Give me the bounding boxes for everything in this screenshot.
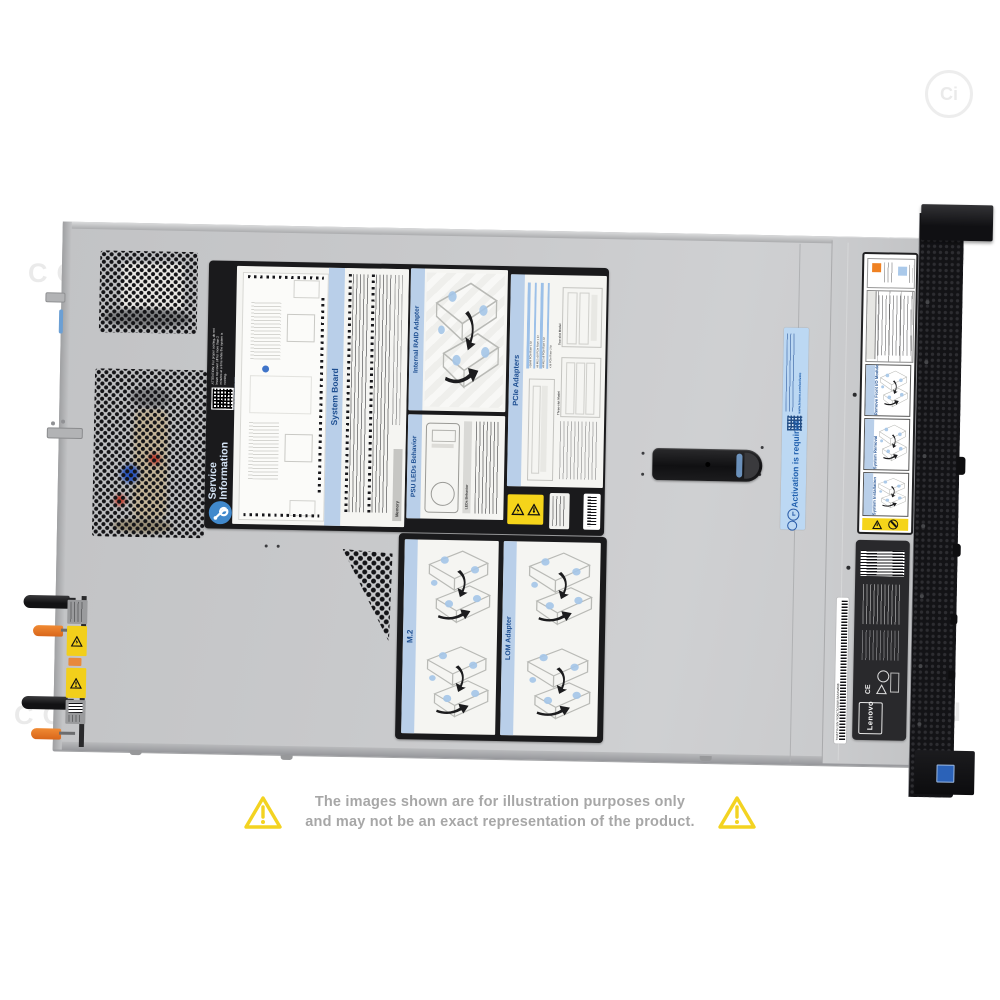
memory-section-bar: Memory (392, 449, 402, 521)
chassis-foot (130, 750, 142, 755)
lom-panel: LOM Adapter (500, 541, 601, 737)
lom-illustration (516, 641, 596, 732)
psu-leds-title-bar: PSU LEDs Behavior (406, 414, 422, 518)
bezel-screw (917, 722, 921, 726)
screw-hole (277, 545, 280, 548)
pcie-title-bar: PCIe Adapters (507, 274, 525, 486)
pcie-diagram (562, 287, 603, 348)
rail-warning-strip (862, 518, 908, 531)
system-board-legend: Memory (342, 268, 409, 527)
system-board-panel: System Board Memory (232, 266, 409, 527)
rear-tab (45, 292, 65, 302)
pcie-title: PCIe Adapters (511, 355, 521, 406)
clock-icon (787, 509, 799, 521)
rail-section: Remove Front I/O Module (864, 364, 911, 417)
activation-url: www.lenovo.com/activate (797, 373, 802, 414)
rack-ear-top (921, 204, 994, 241)
screw-hole (761, 446, 764, 449)
pcie-diagram (527, 379, 555, 481)
lom-title: LOM Adapter (505, 616, 513, 660)
pcie-diagram (560, 357, 601, 418)
bezel-screw (920, 594, 924, 598)
prohibited-icon (888, 519, 898, 529)
psu-leds-panel: PSU LEDs Behavior LEDs Behavior (406, 414, 505, 520)
internal-raid-panel: Internal RAID Adapter (408, 268, 508, 412)
raid-illustration (424, 273, 505, 408)
rear-vent-grille (92, 368, 207, 538)
warning-triangle-icon (243, 795, 283, 831)
psu1-handle (23, 595, 69, 609)
lom-title-bar: LOM Adapter (500, 541, 517, 735)
bezel-latch-tab (948, 671, 955, 680)
rear-latch-knob (61, 420, 65, 424)
rear-vent-grille (99, 250, 199, 334)
serial-barcode (839, 601, 848, 741)
m2-illustration (418, 543, 496, 636)
barcode-label (583, 494, 601, 530)
psu2-release-tab (31, 728, 61, 740)
disclaimer-line-2: and may not be an exact representation o… (305, 813, 694, 833)
rear-blue-clip (59, 310, 63, 334)
pcie-adapters-panel: PCIe Adapters x16/x8 PCIe Riser 1 kitx8 … (507, 274, 607, 488)
regulatory-text-block (862, 630, 901, 661)
warning-label-yellow (507, 494, 544, 525)
rail-sections: Remove Front I/O ModuleSystem RemovalSys… (862, 364, 911, 517)
m2-illustration (416, 639, 494, 730)
psu1-release-tab (33, 625, 63, 637)
certification-marks: CE (863, 666, 898, 699)
lenovo-logo-box: Lenovo (858, 702, 883, 734)
bezel-latch-tab (953, 544, 961, 557)
rail-section: System Installation (862, 472, 909, 517)
regulatory-text-block (862, 584, 901, 625)
orange-led-swatch (872, 263, 881, 272)
system-board-diagram (238, 272, 329, 522)
raid-title-bar: Internal RAID Adapter (408, 268, 425, 410)
raid-title: Internal RAID Adapter (413, 306, 421, 373)
lenovo-logo: Lenovo (865, 701, 875, 730)
m2-lom-label: M.2 LOM Adapter (395, 533, 607, 743)
product-photo: COMPAN PAN COMPAN COMPAN COMPAN PAN Ci C… (0, 0, 1000, 1000)
rail-section: System Removal (863, 418, 910, 471)
service-information-label: ATTENTION: For proper cooling, do not le… (204, 260, 609, 536)
rear-orange-label (68, 658, 81, 666)
bezel-screw (918, 664, 922, 668)
psu-drawing (424, 423, 460, 514)
screw-hole (641, 473, 644, 476)
leds-behavior-header: LEDs Behavior (462, 421, 472, 513)
rear-latch (47, 427, 83, 439)
psu-led-rows (474, 422, 500, 514)
pcie-riser-kit: x16 PCIe Riser 2 kit (546, 283, 554, 369)
psu2-handle (22, 696, 68, 710)
psu2-tab-wire (59, 732, 75, 735)
latch-end-cap (744, 453, 759, 479)
screw-hole (265, 544, 268, 547)
regulatory-barcode (860, 550, 904, 577)
chassis-foot (281, 755, 293, 760)
lom-illustration (518, 545, 598, 638)
screw-hole (846, 566, 850, 570)
bezel-latch-tab (956, 457, 965, 475)
disclaimer-text: The images shown are for illustration pu… (305, 793, 694, 832)
server-top-view: ATTENTION: For proper cooling, do not le… (0, 0, 1000, 1000)
led-legend-box (867, 258, 916, 289)
bezel-latch-tab (950, 614, 957, 625)
activation-gear-icon (787, 521, 797, 531)
disclaimer-line-1: The images shown are for illustration pu… (305, 793, 694, 813)
leds-behavior-header-text: LEDs Behavior (464, 484, 468, 509)
rear-warning-label (66, 668, 87, 698)
service-information-wordmark: Service Information (208, 443, 233, 499)
m2-title: M.2 (405, 630, 414, 644)
blue-led-swatch (898, 267, 907, 276)
rear-gray-label (67, 600, 87, 624)
service-qr-code (211, 387, 233, 409)
screw-hole (853, 393, 857, 397)
bezel-screw (921, 524, 925, 528)
activation-small-print (785, 333, 796, 411)
m2-panel: M.2 (401, 539, 499, 735)
activation-label: www.lenovo.com/activate Activation is re… (780, 327, 809, 529)
chassis-foot (700, 756, 712, 761)
psu-leds-title: PSU LEDs Behavior (410, 436, 418, 498)
rail-instruction-label: Remove Front I/O ModuleSystem RemovalSys… (857, 252, 918, 535)
bezel-screw (925, 300, 929, 304)
pcie-riser-kit-list: x16/x8 PCIe Riser 1 kitx8 ML2 x16 PCIe R… (526, 282, 554, 368)
pcie-notes (559, 421, 598, 480)
rear-latch-knob (51, 421, 55, 425)
attention-note: ATTENTION: For proper cooling, do not le… (211, 324, 233, 384)
hot-swap-note-label (549, 493, 570, 529)
rear-gray-label (65, 700, 85, 724)
brand-line-2: Information (219, 444, 231, 500)
xeon-badge (936, 764, 954, 782)
activation-title: Activation is required (790, 421, 802, 508)
m2-title-bar: M.2 (401, 539, 418, 733)
bezel-screw (924, 360, 928, 364)
latch-screw (705, 462, 710, 467)
system-board-title: System Board (329, 368, 340, 425)
latch-blue-accent (736, 454, 742, 478)
warning-triangle-icon (717, 795, 757, 831)
disclaimer: The images shown are for illustration pu… (0, 788, 1000, 838)
cover-release-latch (652, 448, 763, 482)
memory-header: Memory (394, 501, 399, 517)
service-tools-icon (208, 500, 232, 524)
bezel-screw (922, 454, 926, 458)
screw-hole (642, 452, 645, 455)
regulatory-label: CE Lenovo (852, 540, 910, 741)
led-description-table (865, 290, 914, 363)
rear-warning-label (67, 626, 88, 656)
